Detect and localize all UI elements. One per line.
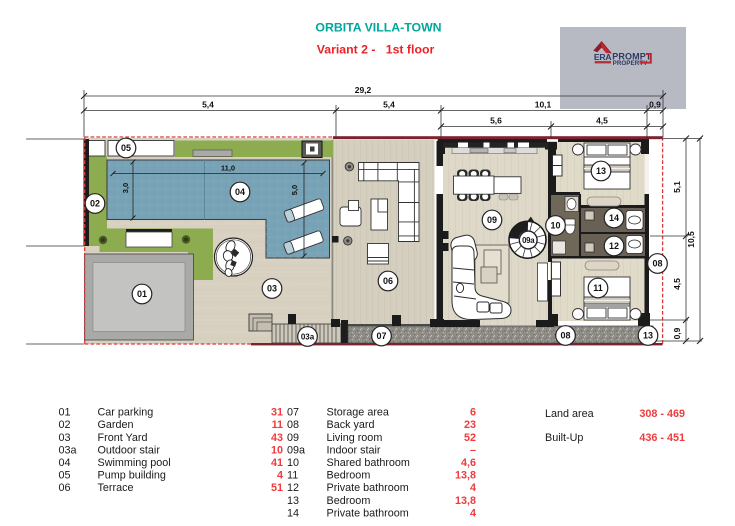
svg-text:23: 23 [464,419,476,431]
svg-text:08: 08 [652,259,662,269]
svg-text:0,9: 0,9 [649,100,661,110]
svg-text:01: 01 [137,289,147,299]
svg-text:Built-Up: Built-Up [545,432,583,444]
svg-text:51: 51 [271,482,283,494]
svg-text:05: 05 [121,143,131,153]
svg-text:Car parking: Car parking [98,407,154,419]
svg-text:07: 07 [376,331,386,341]
svg-text:09: 09 [487,215,497,225]
svg-text:04: 04 [235,187,245,197]
svg-text:06: 06 [59,482,71,494]
svg-text:11,0: 11,0 [221,164,235,173]
svg-text:01: 01 [59,407,71,419]
svg-text:Pump building: Pump building [98,470,166,482]
svg-text:12: 12 [609,241,619,251]
svg-text:Bedroom: Bedroom [327,495,371,507]
svg-text:06: 06 [383,276,393,286]
svg-text:03: 03 [267,284,277,294]
svg-text:308 - 469: 308 - 469 [639,408,685,420]
svg-text:5,1: 5,1 [672,181,682,193]
svg-text:ERA: ERA [594,52,612,62]
svg-text:–: – [470,444,476,456]
svg-text:Bedroom: Bedroom [327,470,371,482]
svg-text:4,5: 4,5 [672,278,682,290]
svg-text:52: 52 [464,432,476,444]
svg-text:Private bathroom: Private bathroom [327,482,409,494]
svg-text:10: 10 [287,457,299,469]
svg-text:ORBITA VILLA-TOWN: ORBITA VILLA-TOWN [315,21,441,35]
svg-text:07: 07 [287,407,299,419]
svg-text:14: 14 [287,507,299,519]
svg-text:4: 4 [470,482,476,494]
svg-text:3,0: 3,0 [121,183,130,193]
svg-text:6: 6 [470,407,476,419]
svg-text:09a: 09a [522,236,535,245]
svg-text:Front Yard: Front Yard [98,432,148,444]
svg-text:10: 10 [550,221,560,231]
svg-text:02: 02 [59,419,71,431]
svg-text:13: 13 [643,331,653,341]
svg-text:Outdoor stair: Outdoor stair [98,444,161,456]
svg-text:Back yard: Back yard [327,419,375,431]
svg-text:41: 41 [271,457,283,469]
svg-text:13: 13 [596,166,606,176]
svg-text:08: 08 [560,331,570,341]
svg-text:436 - 451: 436 - 451 [639,432,685,444]
svg-text:4: 4 [470,507,476,519]
svg-text:Living room: Living room [327,432,383,444]
svg-text:Terrace: Terrace [98,482,134,494]
svg-text:Private bathroom: Private bathroom [327,507,409,519]
svg-text:03a: 03a [59,444,77,456]
svg-text:09a: 09a [287,444,305,456]
svg-text:Land area: Land area [545,408,594,420]
svg-text:Indoor stair: Indoor stair [327,444,381,456]
svg-text:29,2: 29,2 [355,85,372,95]
svg-text:4,6: 4,6 [461,457,476,469]
svg-text:13,8: 13,8 [455,470,476,482]
svg-text:09: 09 [287,432,299,444]
svg-text:10: 10 [271,444,283,456]
svg-text:11: 11 [593,283,603,293]
svg-text:4: 4 [277,470,283,482]
svg-text:Storage area: Storage area [327,407,389,419]
svg-text:31: 31 [271,407,283,419]
svg-text:13,8: 13,8 [455,495,476,507]
svg-text:Swimming pool: Swimming pool [98,457,171,469]
svg-text:43: 43 [271,432,283,444]
svg-text:14: 14 [609,213,619,223]
svg-text:03a: 03a [301,333,315,342]
svg-text:10,5: 10,5 [686,231,696,248]
svg-text:Shared bathroom: Shared bathroom [327,457,410,469]
svg-text:05: 05 [59,470,71,482]
svg-text:08: 08 [287,419,299,431]
svg-text:03: 03 [59,432,71,444]
svg-text:Garden: Garden [98,419,134,431]
svg-text:5,4: 5,4 [383,100,395,110]
svg-text:4,5: 4,5 [596,116,608,126]
svg-text:11: 11 [272,419,283,431]
svg-text:02: 02 [90,199,100,209]
svg-text:0,9: 0,9 [672,327,682,339]
svg-text:13: 13 [287,495,299,507]
svg-text:5,0: 5,0 [290,185,299,195]
svg-text:5,4: 5,4 [202,100,214,110]
svg-text:10,1: 10,1 [535,100,552,110]
svg-text:04: 04 [59,457,71,469]
svg-text:12: 12 [287,482,299,494]
svg-text:11: 11 [287,470,298,482]
svg-text:Variant 2 - 1st floor: Variant 2 - 1st floor [317,43,435,57]
svg-text:5,6: 5,6 [490,116,502,126]
